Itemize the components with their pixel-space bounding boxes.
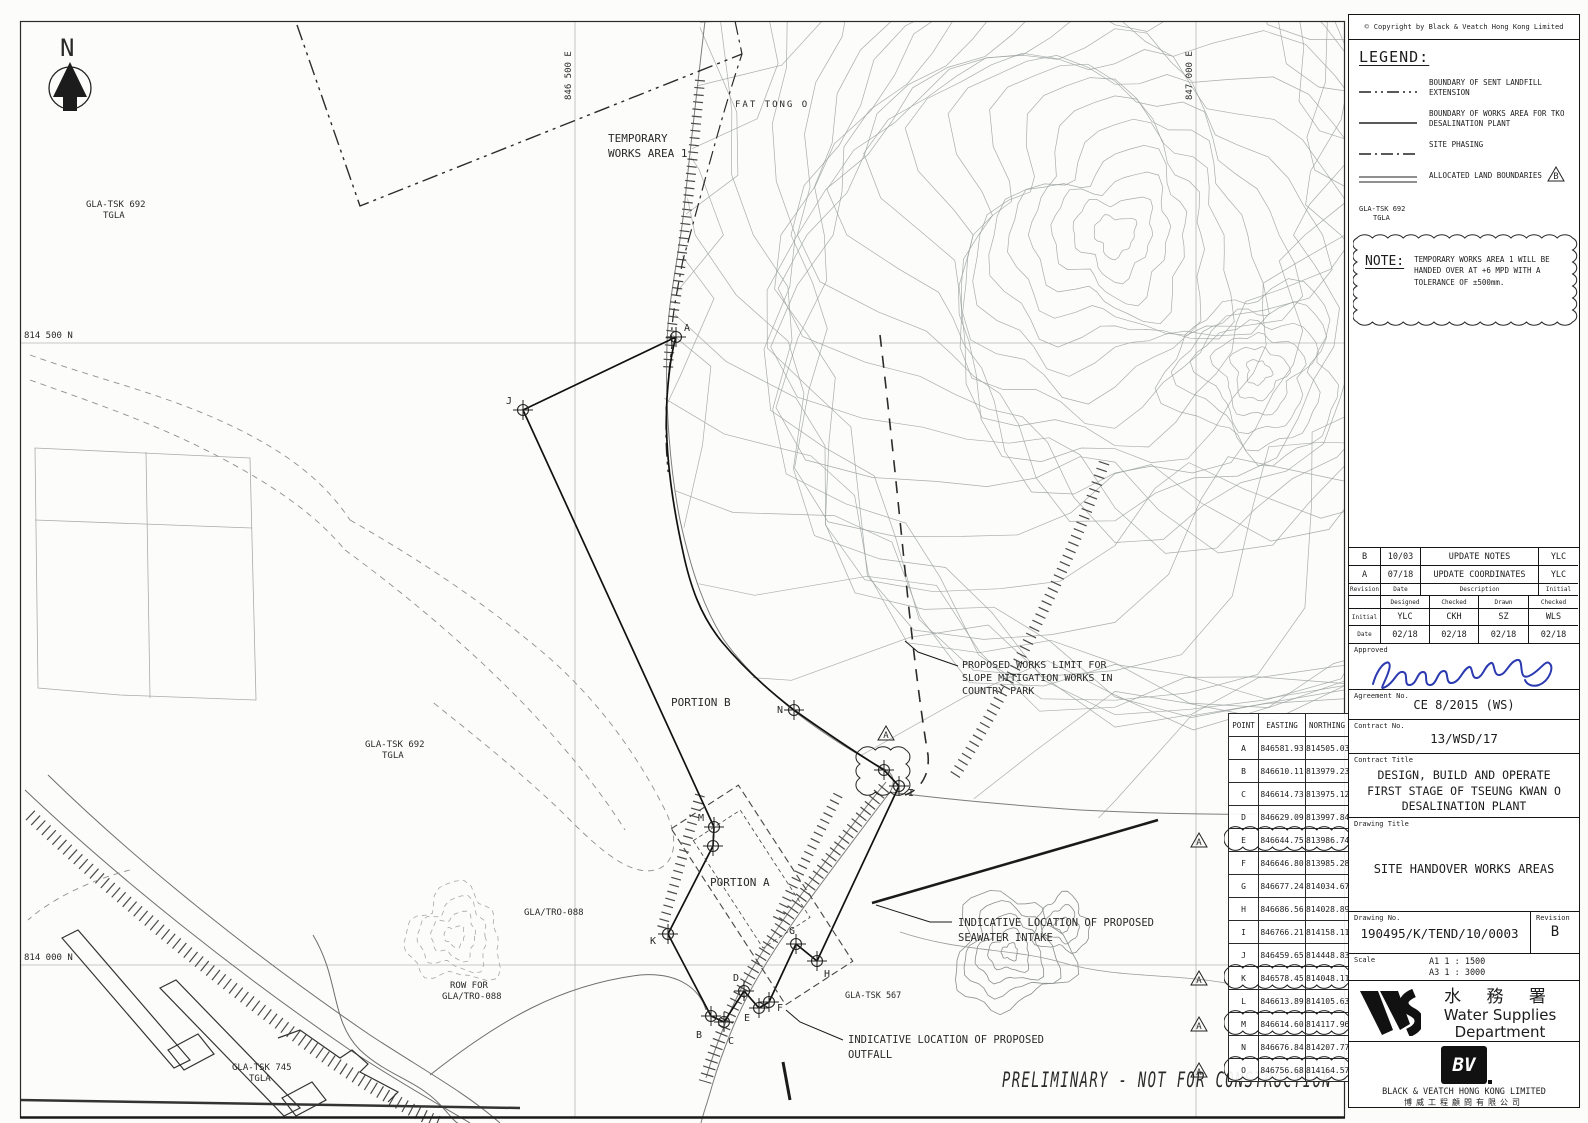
bv-chinese-name: 博威工程顧問有限公司 [1349,1097,1579,1107]
wsd-box: 水 務 署 Water Supplies Department [1349,980,1579,1041]
label-row-for-1: ROW FOR [450,981,489,991]
agreement-box: Agreement No. CE 8/2015 (WS) [1349,689,1579,719]
slope-mitigation-limit [880,335,928,795]
revision-triangle: A [1190,832,1208,848]
coords-cell: 814048.11 [1306,967,1349,989]
contract-title-label: Contract Title [1349,754,1579,764]
revision-triangle-point-o: A [878,726,894,741]
label-gla692-a2: TGLA [103,211,125,221]
coords-cell: 813997.84 [1306,806,1349,828]
scale-a3: A3 1 : 3000 [1429,968,1485,979]
coords-header-cell: EASTING [1259,714,1306,736]
svg-text:A: A [1196,1022,1202,1032]
signoff-initial: CKH [1430,609,1479,626]
rev-header: Revision [1349,584,1381,596]
coords-row-g: G846677.24814034.67 [1229,874,1348,897]
coords-row-n: N846676.84814207.77 [1229,1035,1348,1058]
coords-cell: 814117.96 [1306,1013,1349,1035]
approved-box: Approved [1349,643,1579,689]
grid-labels: 814 500 N 814 000 N 846 500 E 847 000 E [24,51,1195,963]
revision-table: B 10/03 UPDATE NOTES YLC A 07/18 UPDATE … [1349,547,1579,643]
label-slope-2: SLOPE MITIGATION WORKS IN [962,673,1113,684]
label-intake-2: SEAWATER INTAKE [958,932,1053,944]
legend-item-label: SITE PHASING [1429,140,1483,150]
works-area-boundary [523,337,899,1022]
allocated-tag-1: GLA-TSK 692 [1359,205,1417,213]
coords-cell: 846676.84 [1259,1036,1306,1058]
coords-cell: M [1229,1013,1259,1035]
approval-signature [1363,654,1573,689]
coords-cell: 813975.12 [1306,783,1349,805]
grid-label-e-left: 846 500 E [564,51,574,100]
label-gla-tro: GLA/TRO-088 [524,908,584,918]
contract-no-value: 13/WSD/17 [1349,731,1579,746]
contract-title-line: FIRST STAGE OF TSEUNG KWAN O [1349,784,1579,800]
map-labels: TEMPORARY WORKS AREA 1 GLA-TSK 692 TGLA … [86,100,1332,1092]
contract-title-line: DESALINATION PLANT [1349,799,1579,815]
coords-row-d: D846629.09813997.84 [1229,805,1348,828]
signoff-initial: WLS [1529,609,1578,626]
coords-cell: 846677.24 [1259,875,1306,897]
copyright-strip: © Copyright by Black & Veatch Hong Kong … [1349,15,1579,39]
signoff-initial: SZ [1479,609,1529,626]
svg-text:B: B [1553,172,1558,182]
legend-item-label: BOUNDARY OF WORKS AREA FOR TKO DESALINAT… [1429,109,1569,129]
rev-cell: 07/18 [1381,566,1421,584]
label-gla692-b2: TGLA [382,751,404,761]
rev-cell: 10/03 [1381,548,1421,566]
slope-hatching [30,80,1105,1123]
coords-cell: E [1229,829,1259,851]
coords-cell: C [1229,783,1259,805]
label-slope-1: PROPOSED WORKS LIMIT FOR [962,660,1107,671]
coords-cell: 846613.89 [1259,990,1306,1012]
wsd-english-name-1: Water Supplies [1429,1007,1571,1024]
copyright-text: Copyright by Black & Veatch Hong Kong Li… [1374,23,1564,31]
coords-cell: 814164.57 [1306,1059,1349,1081]
svg-text:A: A [1196,838,1202,848]
rev-cell: UPDATE COORDINATES [1421,566,1539,584]
coords-cell: 814448.83 [1306,944,1349,966]
approved-label: Approved [1349,644,1579,654]
coords-table-grid: POINTEASTINGNORTHINGA846581.93814505.03B… [1228,713,1349,1082]
scale-a1: A1 1 : 1500 [1429,957,1485,968]
point-label-g: G [789,926,795,937]
coords-cell: 846686.56 [1259,898,1306,920]
bv-english-name: BLACK & VEATCH HONG KONG LIMITED [1349,1087,1579,1097]
label-temporary-works-2: WORKS AREA 1 [608,147,687,160]
boundary-point-markers [513,327,909,1032]
coords-cell: B [1229,760,1259,782]
wsd-english-name-2: Department [1429,1024,1571,1041]
compound-outline [35,448,256,700]
svg-text:A: A [883,731,889,741]
label-portion-b: PORTION B [671,696,731,709]
point-label-h: H [824,969,830,980]
coords-cell: I [1229,921,1259,943]
signoff-date: 02/18 [1529,626,1578,643]
svg-text:A: A [1196,1068,1202,1078]
coords-cell: O [1229,1059,1259,1081]
coords-cell: 846614.73 [1259,783,1306,805]
label-intake-1: INDICATIVE LOCATION OF PROPOSED [958,917,1154,929]
coords-row-i: I846766.21814158.11 [1229,920,1348,943]
coords-row-e: E846644.75813986.74A [1229,828,1348,851]
wsd-logo [1357,986,1421,1036]
coords-cell: H [1229,898,1259,920]
rev-header: Description [1421,584,1539,596]
contract-title-box: Contract Title DESIGN, BUILD AND OPERATE… [1349,753,1579,817]
note-text: TEMPORARY WORKS AREA 1 WILL BE HANDED OV… [1414,254,1552,288]
coords-cell: 846629.09 [1259,806,1306,828]
drawing-title-box: Drawing Title SITE HANDOVER WORKS AREAS [1349,817,1579,911]
legend-item-works-boundary: BOUNDARY OF WORKS AREA FOR TKO DESALINAT… [1359,109,1569,131]
coords-row-f: F846646.80813985.28 [1229,851,1348,874]
secondary-peak-contours [1155,279,1338,466]
drawing-no-box: Drawing No. 190495/K/TEND/10/0003 Revisi… [1349,911,1579,953]
scale-box: Scale A1 1 : 1500 A3 1 : 3000 [1349,953,1579,980]
knoll-dashed-contours [404,880,501,980]
coords-cell: 813979.23 [1306,760,1349,782]
coords-cell: 813986.74 [1306,829,1349,851]
coords-cell: 846644.75 [1259,829,1306,851]
signoff-date: 02/18 [1479,626,1529,643]
coords-header-cell: NORTHING [1306,714,1348,736]
signoff-header: Checked [1529,596,1578,609]
map-border [21,22,1345,1118]
site-plan-map: A J M K B C D E F G H I N A 814 500 N 81… [0,0,1348,1123]
point-label-d: D [733,973,739,984]
legend-item-sent-boundary: BOUNDARY OF SENT LANDFILL EXTENSION [1359,78,1569,100]
label-portion-a: PORTION A [710,876,770,889]
coords-cell: K [1229,967,1259,989]
coords-cell: 846459.65 [1259,944,1306,966]
point-letters: A J M K B C D E F G H I N [506,323,914,1047]
rev-header: Date [1381,584,1421,596]
rev-cell: YLC [1539,548,1578,566]
coords-cell: 846646.80 [1259,852,1306,874]
coords-row-l: L846613.89814105.63 [1229,989,1348,1012]
point-label-m: M [698,813,704,824]
copyright-symbol: © [1365,23,1369,31]
coords-cell: G [1229,875,1259,897]
coords-cell: F [1229,852,1259,874]
coords-row-a: A846581.93814505.03 [1229,736,1348,759]
label-outfall-1: INDICATIVE LOCATION OF PROPOSED [848,1034,1044,1046]
label-gla692-b1: GLA-TSK 692 [365,740,425,750]
contract-no-box: Contract No. 13/WSD/17 [1349,719,1579,753]
legend-section: LEGEND: BOUNDARY OF SENT LANDFILL EXTENS… [1349,39,1579,547]
point-label-a: A [684,323,690,334]
coords-row-j: J846459.65814448.83 [1229,943,1348,966]
signoff-header: Drawn [1479,596,1529,609]
coords-cell: N [1229,1036,1259,1058]
drawing-sheet: A J M K B C D E F G H I N A 814 500 N 81… [0,0,1588,1123]
label-temporary-works-1: TEMPORARY [608,132,668,145]
coords-cell: D [1229,806,1259,828]
revision-value: B [1531,924,1579,940]
signoff-label: Date [1349,626,1381,643]
rev-cell: UPDATE NOTES [1421,548,1539,566]
allocated-tag-2: TGLA [1359,214,1417,222]
label-row-for-2: GLA/TRO-088 [442,992,502,1002]
coords-row-k: K846578.45814048.11A [1229,966,1348,989]
agreement-value: CE 8/2015 (WS) [1349,698,1579,712]
coords-cell: L [1229,990,1259,1012]
island-contours [956,891,1079,1015]
grid-lines [20,21,1345,1118]
signoff-date: 02/18 [1381,626,1430,643]
legend-item-allocated-land: GLA-TSK 692 TGLA ALLOCATED LAND BOUNDARI… [1359,171,1569,222]
point-label-c: C [728,1036,734,1047]
coords-row-m: M846614.60814117.96A [1229,1012,1348,1035]
leader-lines [783,641,1158,1100]
revision-triangle: A [1190,1062,1208,1078]
bv-box: BV BLACK & VEATCH HONG KONG LIMITED 博威工程… [1349,1041,1579,1107]
label-gla567: GLA-TSK 567 [845,991,901,1001]
label-outfall-2: OUTFALL [848,1049,892,1061]
coords-cell: J [1229,944,1259,966]
sent-landfill-boundary [297,25,742,206]
double-line-icon: GLA-TSK 692 TGLA [1359,171,1417,222]
contract-title-line: DESIGN, BUILD AND OPERATE [1349,768,1579,784]
point-label-j: J [506,396,512,407]
coords-row-o: O846756.68814164.57A [1229,1058,1348,1081]
dash-dot-dot-line-icon [1359,78,1417,100]
coords-cell: 846581.93 [1259,737,1306,759]
signoff-header: Checked [1430,596,1479,609]
rev-cell: A [1349,566,1381,584]
point-label-k: K [650,936,656,947]
point-label-n: N [777,705,783,716]
label-gla692-a1: GLA-TSK 692 [86,200,146,210]
coords-cell: 814034.67 [1306,875,1349,897]
drawing-no-label: Drawing No. [1349,912,1530,922]
drawing-title-label: Drawing Title [1349,818,1579,828]
point-label-f: F [777,1003,783,1014]
solid-line-icon [1359,109,1417,131]
coords-cell: 846610.11 [1259,760,1306,782]
legend-item-label: ALLOCATED LAND BOUNDARIES [1429,171,1542,181]
coords-row-h: H846686.56814028.89 [1229,897,1348,920]
coords-cell: 846756.68 [1259,1059,1306,1081]
revision-triangle: A [1190,1016,1208,1032]
rev-cell: B [1349,548,1381,566]
label-gla745-2: TGLA [249,1074,271,1084]
legend-item-site-phasing: SITE PHASING [1359,140,1569,162]
signoff-initial: YLC [1381,609,1430,626]
label-fat-tong-o: FAT TONG O [735,100,809,110]
coords-header-cell: POINT [1229,714,1259,736]
rev-header: Initial [1539,584,1578,596]
dashed-features [28,355,674,920]
legend-revision-triangle: B [1547,166,1565,182]
drawing-title-value: SITE HANDOVER WORKS AREAS [1349,862,1579,876]
coords-cell: 846766.21 [1259,921,1306,943]
wsd-chinese-name: 水 務 署 [1429,982,1571,1007]
coords-cell: A [1229,737,1259,759]
revision-triangle: A [1190,970,1208,986]
coords-cell: 814505.03 [1306,737,1349,759]
drawing-no-value: 190495/K/TEND/10/0003 [1349,926,1530,941]
grid-label-n-top: 814 500 N [24,331,73,341]
coords-cell: 814105.63 [1306,990,1349,1012]
svg-text:A: A [1196,976,1202,986]
grid-label-n-bottom: 814 000 N [24,953,73,963]
coords-header-row: POINTEASTINGNORTHING [1229,714,1348,736]
coords-cell: 846578.45 [1259,967,1306,989]
coords-cell: 814028.89 [1306,898,1349,920]
revision-label: Revision [1531,912,1579,922]
coords-cell: 846614.60 [1259,1013,1306,1035]
label-slope-3: COUNTRY PARK [962,686,1034,697]
rev-cell: YLC [1539,566,1578,584]
point-label-b: B [696,1030,702,1041]
bv-logo: BV [1441,1046,1487,1084]
label-gla745-1: GLA-TSK 745 [232,1063,292,1073]
coords-row-c: C846614.73813975.12 [1229,782,1348,805]
dash-dot-line-icon [1359,140,1417,162]
signoff-label: Initial [1349,609,1381,626]
note-heading: NOTE: [1365,254,1404,288]
coords-cell: 814207.77 [1306,1036,1349,1058]
coords-table: POINTEASTINGNORTHINGA846581.93814505.03B… [1188,713,1354,1082]
contract-no-label: Contract No. [1349,720,1579,730]
coords-row-b: B846610.11813979.23 [1229,759,1348,782]
note-cloud: NOTE: TEMPORARY WORKS AREA 1 WILL BE HAN… [1359,238,1569,334]
coords-cell: 814158.11 [1306,921,1349,943]
legend-heading: LEGEND: [1359,48,1569,66]
svg-text:N: N [60,34,74,62]
point-label-e: E [744,1013,750,1024]
signoff-header: Designed [1381,596,1430,609]
signoff-date: 02/18 [1430,626,1479,643]
grid-label-e-right: 847 000 E [1185,51,1195,100]
title-block: © Copyright by Black & Veatch Hong Kong … [1348,14,1580,1108]
coords-cell: 813985.28 [1306,852,1349,874]
legend-item-label: BOUNDARY OF SENT LANDFILL EXTENSION [1429,78,1569,98]
north-arrow: N [49,34,91,111]
